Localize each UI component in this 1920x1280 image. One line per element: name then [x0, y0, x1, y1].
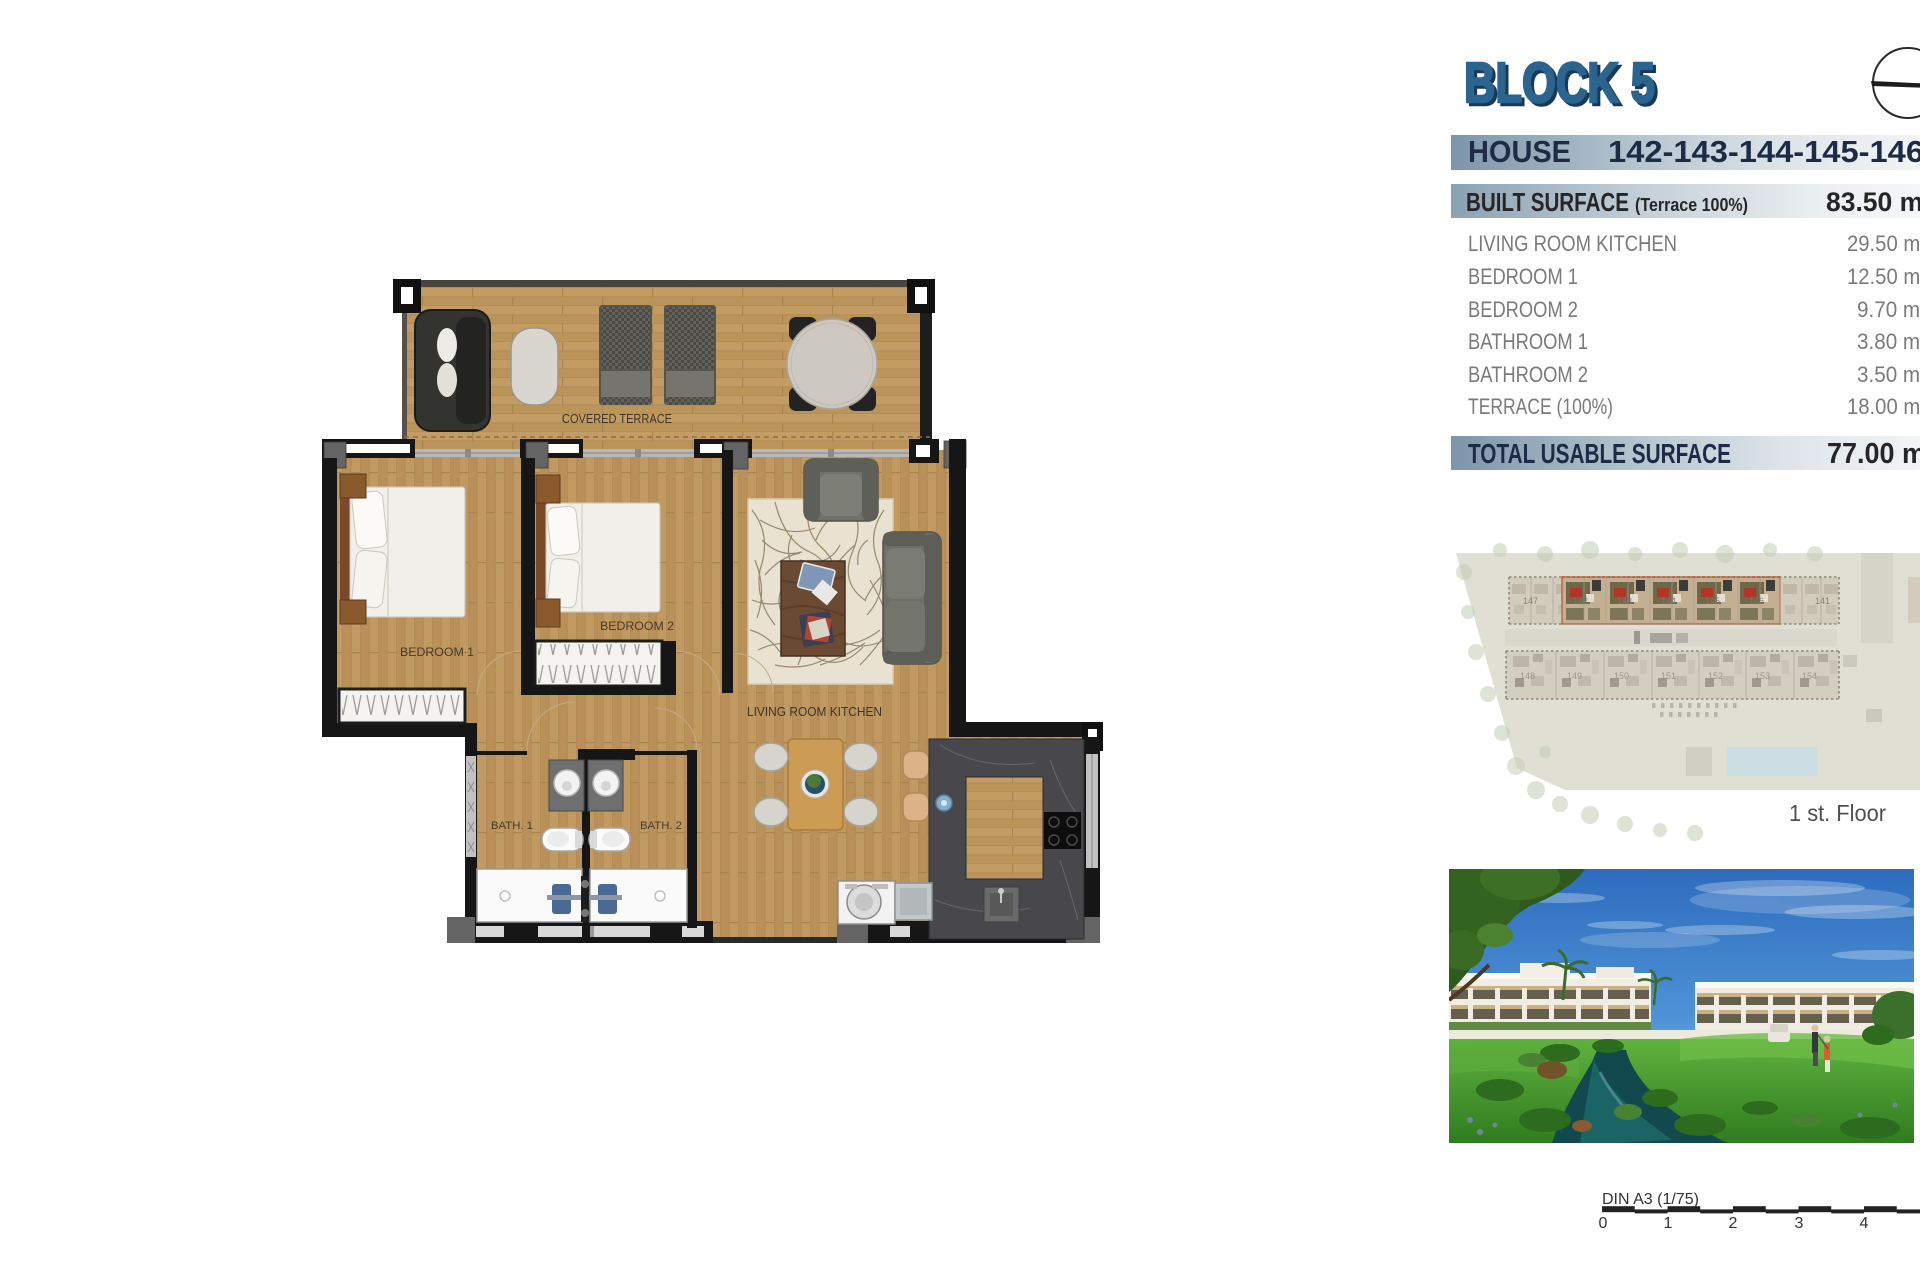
svg-text:BUILT SURFACE: BUILT SURFACE: [1466, 187, 1629, 217]
svg-text:HOUSE: HOUSE: [1468, 134, 1571, 169]
svg-text:1: 1: [1664, 1215, 1673, 1232]
svg-text:142: 142: [1573, 596, 1588, 606]
svg-text:BATHROOM 2: BATHROOM 2: [1468, 362, 1588, 387]
svg-text:BEDROOM 1: BEDROOM 1: [1468, 264, 1578, 289]
svg-text:3.50 m²: 3.50 m²: [1857, 362, 1920, 387]
svg-text:83.50 m²: 83.50 m²: [1826, 187, 1920, 217]
svg-text:144: 144: [1661, 596, 1676, 606]
svg-text:12.50 m²: 12.50 m²: [1847, 264, 1920, 289]
svg-text:148: 148: [1520, 671, 1535, 681]
svg-text:BATH. 1: BATH. 1: [491, 820, 533, 832]
svg-text:2: 2: [1729, 1215, 1738, 1232]
svg-text:154: 154: [1802, 671, 1817, 681]
svg-text:146: 146: [1749, 596, 1764, 606]
svg-text:77.00 m²: 77.00 m²: [1827, 438, 1920, 470]
svg-text:BEDROOM 2: BEDROOM 2: [600, 619, 674, 633]
svg-text:29.50 m²: 29.50 m²: [1847, 231, 1920, 256]
svg-text:142-143-144-145-146: 142-143-144-145-146: [1608, 134, 1920, 169]
svg-text:141: 141: [1815, 596, 1830, 606]
svg-text:TERRACE (100%): TERRACE (100%): [1468, 394, 1613, 419]
svg-text:3: 3: [1795, 1215, 1804, 1232]
svg-text:143: 143: [1617, 596, 1632, 606]
svg-text:153: 153: [1755, 671, 1770, 681]
svg-text:18.00 m²: 18.00 m²: [1847, 394, 1920, 419]
svg-text:9.70 m²: 9.70 m²: [1857, 297, 1920, 322]
svg-text:TOTAL USABLE SURFACE: TOTAL USABLE SURFACE: [1468, 438, 1731, 469]
svg-text:149: 149: [1567, 671, 1582, 681]
svg-text:BATH. 2: BATH. 2: [640, 820, 682, 832]
svg-text:3.80 m²: 3.80 m²: [1857, 329, 1920, 354]
svg-text:BLOCK 5: BLOCK 5: [1464, 51, 1655, 115]
svg-text:0: 0: [1599, 1215, 1608, 1232]
svg-text:LIVING ROOM KITCHEN: LIVING ROOM KITCHEN: [747, 705, 882, 719]
svg-text:COVERED TERRACE: COVERED TERRACE: [562, 412, 672, 426]
svg-text:152: 152: [1708, 671, 1723, 681]
svg-text:DIN A3 (1/75): DIN A3 (1/75): [1602, 1191, 1699, 1208]
svg-text:(Terrace 100%): (Terrace 100%): [1635, 194, 1748, 215]
svg-text:145: 145: [1705, 596, 1720, 606]
svg-text:BEDROOM 2: BEDROOM 2: [1468, 297, 1578, 322]
svg-text:150: 150: [1614, 671, 1629, 681]
svg-text:LIVING ROOM KITCHEN: LIVING ROOM KITCHEN: [1468, 231, 1677, 256]
svg-text:151: 151: [1661, 671, 1676, 681]
svg-text:147: 147: [1523, 596, 1538, 606]
svg-text:BATHROOM 1: BATHROOM 1: [1468, 329, 1588, 354]
svg-text:BEDROOM 1: BEDROOM 1: [400, 645, 474, 659]
svg-text:4: 4: [1860, 1215, 1869, 1232]
svg-text:1 st. Floor: 1 st. Floor: [1789, 800, 1886, 826]
